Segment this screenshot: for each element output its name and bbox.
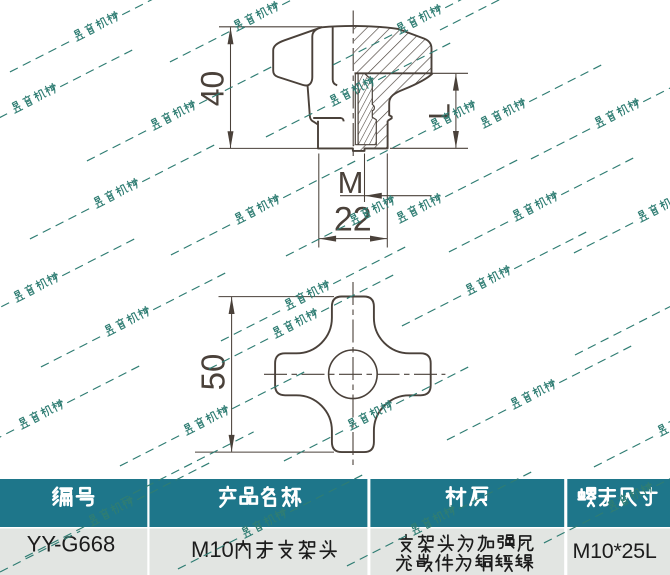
svg-text:40: 40 bbox=[195, 71, 231, 107]
svg-text:M10*25L: M10*25L bbox=[573, 539, 657, 563]
svg-text:M10: M10 bbox=[191, 537, 234, 562]
svg-text:22: 22 bbox=[334, 201, 372, 239]
svg-text:M: M bbox=[338, 165, 364, 200]
svg-text:50: 50 bbox=[195, 354, 232, 391]
svg-text:L: L bbox=[424, 103, 457, 120]
